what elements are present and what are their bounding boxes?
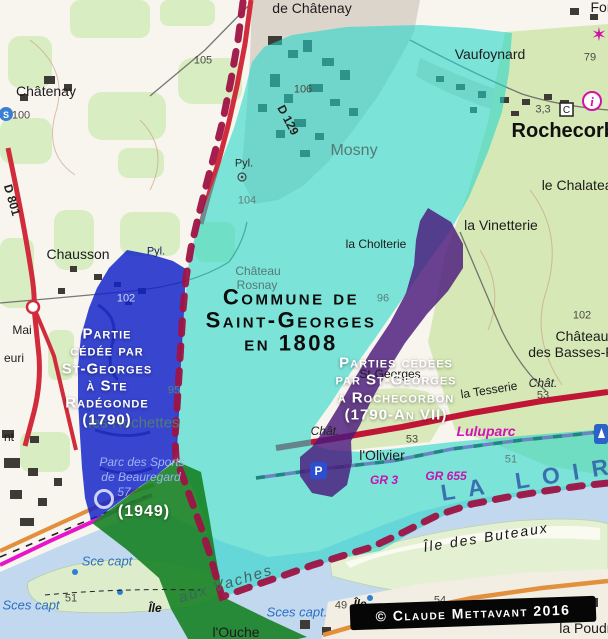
svg-text:C: C [563, 105, 570, 116]
svg-text:i: i [590, 94, 594, 109]
island-waypoint [72, 569, 78, 575]
star-icon: ✶ [591, 25, 607, 46]
svg-text:S: S [3, 110, 9, 120]
map-screenshot: P C i ✶ S de ChâtenayChâtenay105100106D … [0, 0, 608, 639]
island-waypoint [367, 595, 373, 601]
roundabout [27, 301, 39, 313]
copyright-text: © Claude Mettavant 2016 [375, 602, 570, 625]
map-canvas: P C i ✶ S [0, 0, 608, 639]
svg-text:P: P [314, 464, 322, 478]
